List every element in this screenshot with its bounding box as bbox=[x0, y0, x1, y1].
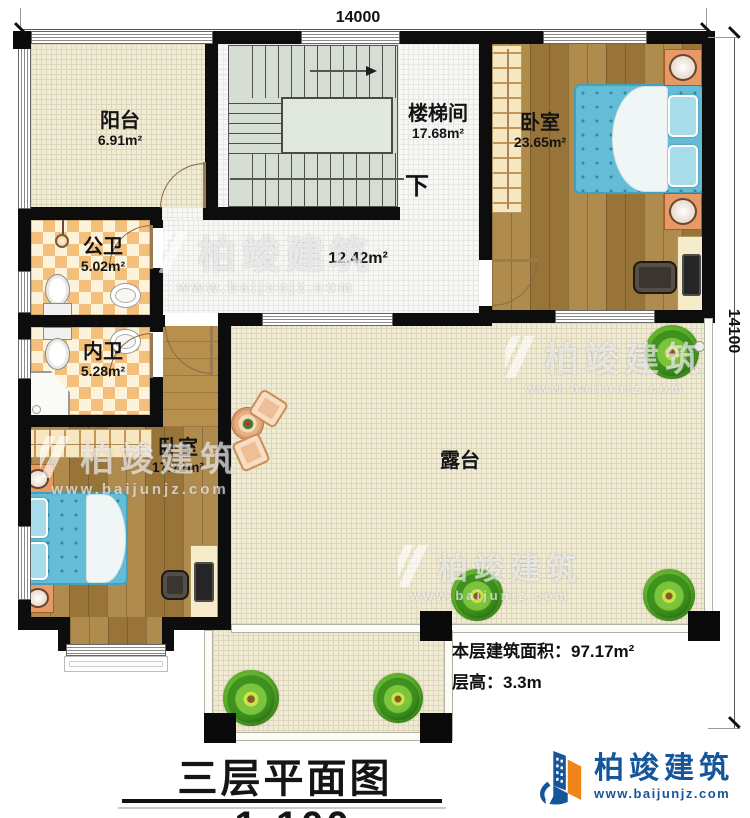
floor-height-text: 层高：3.3m bbox=[452, 667, 634, 698]
chair bbox=[633, 261, 677, 294]
room-name: 卧室 bbox=[485, 112, 595, 134]
title-text: 三层平面图 bbox=[178, 757, 393, 801]
room-label-bedroom-top: 卧室 23.65m² bbox=[485, 112, 595, 151]
tv bbox=[194, 562, 214, 602]
room-area: 12.42m² bbox=[318, 250, 398, 267]
room-name: 公卫 bbox=[58, 236, 148, 258]
pillow bbox=[28, 498, 48, 538]
stair-direction-arrow-icon bbox=[366, 66, 377, 76]
room-area: 17.72m² bbox=[122, 459, 234, 476]
toilet bbox=[45, 274, 70, 306]
room-area: 17.68m² bbox=[392, 125, 484, 142]
dimension-label-top: 14000 bbox=[298, 9, 418, 27]
title-underline bbox=[118, 807, 446, 809]
room-name: 露台 bbox=[412, 450, 508, 472]
room-name: 阳台 bbox=[70, 110, 170, 132]
column bbox=[204, 713, 236, 743]
stair-landing bbox=[281, 97, 393, 154]
door-leaf bbox=[492, 259, 538, 262]
room-label-private-bath: 内卫 5.28m² bbox=[58, 341, 148, 380]
window bbox=[301, 31, 400, 44]
window bbox=[262, 313, 393, 326]
room-label-bedroom-bottom: 卧室 17.72m² bbox=[122, 437, 234, 476]
floor-area-text: 本层建筑面积：97.17m² bbox=[452, 636, 634, 667]
pillow bbox=[668, 95, 698, 137]
terrace-parapet bbox=[204, 732, 453, 741]
pillow bbox=[668, 145, 698, 187]
nightstand-lamp bbox=[664, 193, 702, 230]
lamp-cord bbox=[62, 220, 64, 235]
nightstand-lamp bbox=[664, 49, 702, 86]
stair-treads-left bbox=[229, 97, 286, 154]
wall bbox=[18, 315, 165, 327]
floor-plan-canvas: 阳台 6.91m² 楼梯间 17.68m² 下 卧室 23.65m² 公卫 5.… bbox=[0, 0, 750, 818]
window bbox=[18, 526, 31, 600]
chair bbox=[161, 570, 189, 600]
balcony-railing bbox=[18, 45, 31, 209]
window bbox=[18, 339, 31, 379]
company-name: 柏竣建筑 bbox=[594, 752, 734, 786]
wall bbox=[18, 415, 163, 427]
room-label-stairwell: 楼梯间 17.68m² bbox=[392, 103, 484, 142]
room-area: 5.28m² bbox=[58, 363, 148, 380]
company-logo-icon bbox=[536, 746, 586, 806]
column bbox=[688, 611, 720, 641]
wall bbox=[391, 313, 479, 326]
floor-annotations: 本层建筑面积：97.17m² 层高：3.3m bbox=[452, 636, 634, 698]
room-name: 楼梯间 bbox=[392, 103, 484, 125]
wall bbox=[18, 207, 162, 220]
stair-section-line bbox=[230, 178, 404, 180]
tree bbox=[373, 673, 423, 723]
extension-line bbox=[708, 728, 740, 729]
door-leaf bbox=[150, 333, 153, 378]
entry-step bbox=[64, 656, 168, 672]
room-area: 23.65m² bbox=[485, 134, 595, 151]
title-underline bbox=[122, 799, 442, 803]
column bbox=[13, 31, 31, 49]
window bbox=[66, 644, 166, 656]
door-leaf bbox=[210, 326, 213, 375]
room-label-terrace: 露台 bbox=[412, 450, 508, 472]
balcony-railing bbox=[31, 31, 213, 44]
terrace-parapet bbox=[704, 318, 713, 630]
wall bbox=[205, 31, 218, 220]
column bbox=[420, 611, 452, 641]
column bbox=[420, 713, 452, 743]
wall bbox=[168, 617, 231, 630]
room-area: 6.91m² bbox=[70, 132, 170, 149]
wall bbox=[213, 31, 305, 44]
wall bbox=[702, 31, 715, 323]
terrace-parapet bbox=[231, 624, 713, 633]
window bbox=[18, 271, 31, 313]
stair-treads-bottom bbox=[252, 153, 398, 206]
company-url: www.baijunjz.com bbox=[594, 786, 734, 801]
wall bbox=[231, 313, 264, 326]
extension-line bbox=[708, 37, 740, 38]
company-logo: 柏竣建筑 www.baijunjz.com bbox=[536, 746, 734, 806]
room-label-balcony: 阳台 6.91m² bbox=[70, 110, 170, 149]
wall bbox=[479, 310, 557, 323]
tv bbox=[682, 254, 701, 296]
pillow bbox=[28, 542, 48, 580]
dimension-line-top bbox=[20, 29, 708, 30]
room-label-hallway: 12.42m² bbox=[318, 250, 398, 267]
wall bbox=[203, 207, 400, 220]
door-leaf bbox=[203, 162, 206, 208]
window bbox=[543, 31, 647, 44]
sink bbox=[110, 283, 141, 308]
room-area: 5.02m² bbox=[58, 258, 148, 275]
tree bbox=[645, 325, 699, 379]
room-name: 内卫 bbox=[58, 341, 148, 363]
window bbox=[555, 310, 655, 323]
wall bbox=[398, 31, 547, 44]
floor-hall-gap bbox=[162, 207, 205, 220]
dimension-label-right: 14100 bbox=[724, 296, 742, 366]
dimension-line-right bbox=[734, 38, 735, 728]
tree bbox=[451, 569, 503, 621]
room-label-public-bath: 公卫 5.02m² bbox=[58, 236, 148, 275]
stairs-down-label: 下 bbox=[405, 166, 429, 201]
stair-direction-line bbox=[310, 70, 368, 72]
room-name: 卧室 bbox=[122, 437, 234, 459]
door-leaf bbox=[150, 225, 153, 269]
